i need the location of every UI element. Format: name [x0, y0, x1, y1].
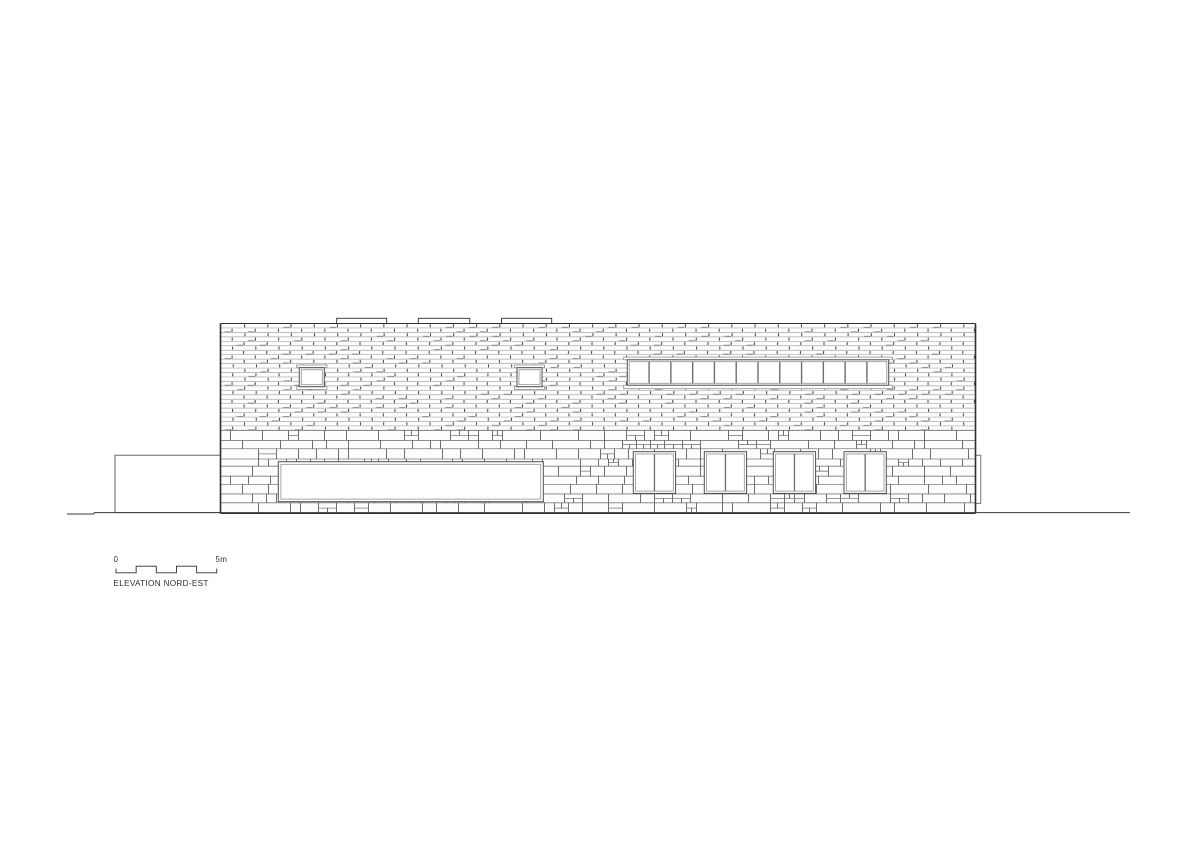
scale-bar-line	[116, 566, 217, 573]
building-facade-layer	[67, 318, 1130, 514]
scale-end-label: 5m	[216, 555, 228, 564]
scale-start-label: 0	[114, 555, 119, 564]
scale-bar: 0 5m	[114, 555, 228, 573]
elevation-drawing: 0 5m ELEVATION NORD-EST	[0, 0, 1200, 848]
drawing-sheet: 0 5m ELEVATION NORD-EST	[0, 0, 1200, 848]
drawing-title: ELEVATION NORD-EST	[114, 579, 209, 588]
